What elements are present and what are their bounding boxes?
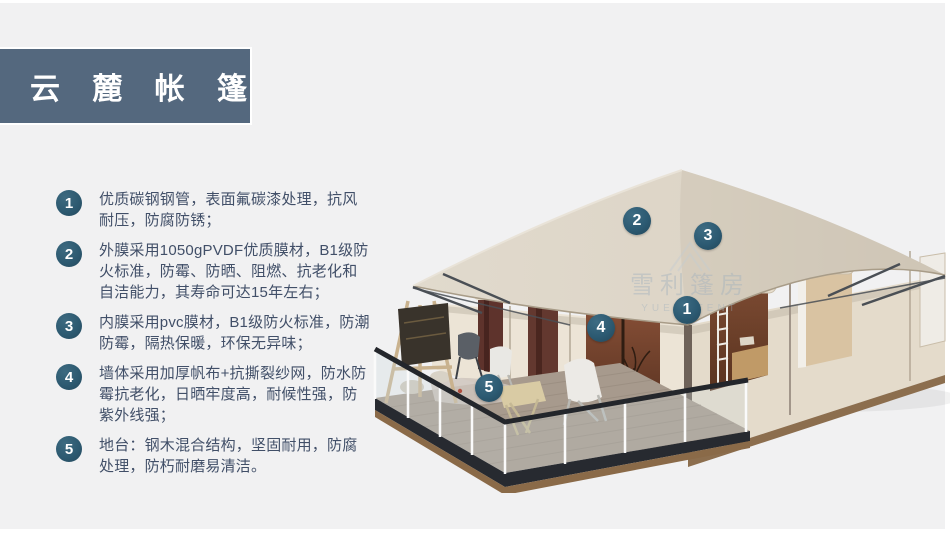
feature-text-4: 墙体采用加厚帆布+抗撕裂纱网，防水防霉抗老化，日晒牢度高，耐候性强，防紫外线强； (99, 363, 371, 426)
bullet-badge-2: 2 (56, 241, 82, 267)
bullet-badge-5: 5 (56, 436, 82, 462)
list-item: 1 优质碳钢钢管，表面氟碳漆处理，抗风耐压，防腐防锈； (56, 189, 378, 231)
feature-text-3: 内膜采用pvc膜材，B1级防火标准，防潮防霉，隔热保暖，环保无异味； (99, 312, 371, 354)
list-item: 3 内膜采用pvc膜材，B1级防火标准，防潮防霉，隔热保暖，环保无异味； (56, 312, 378, 354)
feature-text-2: 外膜采用1050gPVDF优质膜材，B1级防火标准，防霉、防晒、阻燃、抗老化和自… (99, 240, 371, 303)
feature-list: 1 优质碳钢钢管，表面氟碳漆处理，抗风耐压，防腐防锈； 2 外膜采用1050gP… (56, 189, 378, 477)
tent-callout-1: 1 (673, 296, 701, 324)
feature-text-5: 地台：钢木混合结构，坚固耐用，防腐处理，防朽耐磨易清洁。 (99, 435, 371, 477)
tent-callout-5: 5 (475, 374, 503, 402)
tent-render-image: 雪利篷房 YUELI TENT (360, 153, 950, 493)
slide-background: 云 麓 帐 篷 1 优质碳钢钢管，表面氟碳漆处理，抗风耐压，防腐防锈； 2 外膜… (0, 3, 945, 529)
list-item: 5 地台：钢木混合结构，坚固耐用，防腐处理，防朽耐磨易清洁。 (56, 435, 378, 477)
watermark-cn: 雪利篷房 (630, 272, 750, 299)
tent-callout-3: 3 (694, 222, 722, 250)
tent-illustration: 雪利篷房 YUELI TENT (360, 153, 950, 493)
title-banner: 云 麓 帐 篷 (0, 47, 252, 125)
feature-text-1: 优质碳钢钢管，表面氟碳漆处理，抗风耐压，防腐防锈； (99, 189, 371, 231)
tent-callout-2: 2 (623, 207, 651, 235)
tent-callout-4: 4 (587, 314, 615, 342)
bullet-badge-4: 4 (56, 364, 82, 390)
list-item: 4 墙体采用加厚帆布+抗撕裂纱网，防水防霉抗老化，日晒牢度高，耐候性强，防紫外线… (56, 363, 378, 426)
bullet-badge-1: 1 (56, 190, 82, 216)
bullet-badge-3: 3 (56, 313, 82, 339)
list-item: 2 外膜采用1050gPVDF优质膜材，B1级防火标准，防霉、防晒、阻燃、抗老化… (56, 240, 378, 303)
page-title: 云 麓 帐 篷 (30, 64, 259, 108)
